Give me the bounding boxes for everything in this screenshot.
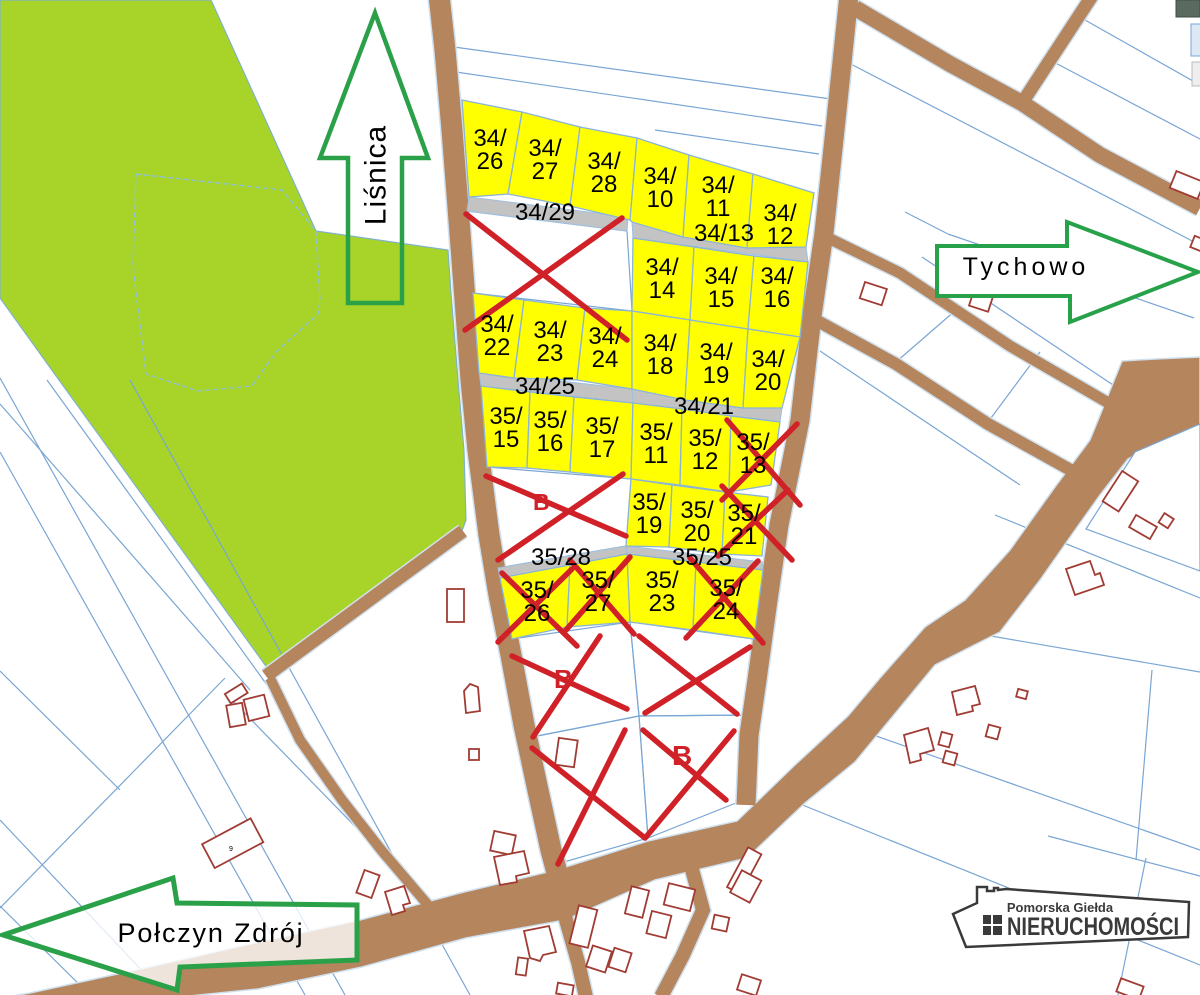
svg-text:35/15: 35/15 bbox=[489, 403, 523, 453]
svg-text:35/23: 35/23 bbox=[645, 567, 679, 617]
svg-text:34/26: 34/26 bbox=[473, 125, 507, 175]
svg-text:Tychowo: Tychowo bbox=[963, 253, 1090, 281]
svg-text:35/11: 35/11 bbox=[639, 419, 673, 469]
svg-text:34/25: 34/25 bbox=[515, 373, 575, 400]
svg-text:B: B bbox=[672, 740, 692, 771]
svg-text:35/16: 35/16 bbox=[533, 407, 567, 457]
svg-text:35/28: 35/28 bbox=[531, 544, 591, 571]
svg-text:9: 9 bbox=[229, 846, 233, 853]
svg-text:34/27: 34/27 bbox=[528, 135, 562, 185]
svg-text:34/15: 34/15 bbox=[704, 263, 738, 313]
svg-text:35/17: 35/17 bbox=[585, 413, 619, 463]
svg-text:B: B bbox=[533, 489, 550, 515]
svg-text:34/12: 34/12 bbox=[763, 200, 797, 250]
svg-text:35/26: 35/26 bbox=[520, 577, 554, 627]
svg-text:34/23: 34/23 bbox=[533, 317, 567, 367]
svg-text:35/27: 35/27 bbox=[581, 567, 615, 617]
svg-text:34/20: 34/20 bbox=[751, 346, 785, 396]
svg-text:34/28: 34/28 bbox=[587, 148, 621, 198]
svg-text:34/24: 34/24 bbox=[588, 323, 622, 373]
svg-text:Połczyn Zdrój: Połczyn Zdrój bbox=[118, 918, 305, 948]
svg-text:35/25: 35/25 bbox=[672, 544, 732, 571]
svg-text:34/16: 34/16 bbox=[760, 263, 794, 313]
svg-text:35/13: 35/13 bbox=[736, 429, 770, 479]
svg-text:34/10: 34/10 bbox=[643, 163, 677, 213]
svg-text:Liśnica: Liśnica bbox=[360, 125, 393, 225]
svg-text:34/21: 34/21 bbox=[674, 393, 734, 420]
svg-text:35/24: 35/24 bbox=[709, 575, 743, 625]
svg-text:34/14: 34/14 bbox=[645, 254, 679, 304]
svg-text:NIERUCHOMOŚCI: NIERUCHOMOŚCI bbox=[1007, 911, 1179, 941]
svg-text:34/19: 34/19 bbox=[699, 339, 733, 389]
svg-text:34/29: 34/29 bbox=[515, 199, 575, 226]
svg-text:35/21: 35/21 bbox=[727, 500, 761, 550]
svg-text:B: B bbox=[554, 664, 573, 694]
svg-text:34/13: 34/13 bbox=[694, 220, 754, 247]
svg-text:35/20: 35/20 bbox=[680, 497, 714, 547]
svg-text:35/19: 35/19 bbox=[632, 489, 666, 539]
svg-text:34/22: 34/22 bbox=[480, 311, 514, 361]
svg-text:35/12: 35/12 bbox=[688, 425, 722, 475]
svg-text:34/11: 34/11 bbox=[701, 172, 735, 222]
svg-text:34/18: 34/18 bbox=[643, 330, 677, 380]
